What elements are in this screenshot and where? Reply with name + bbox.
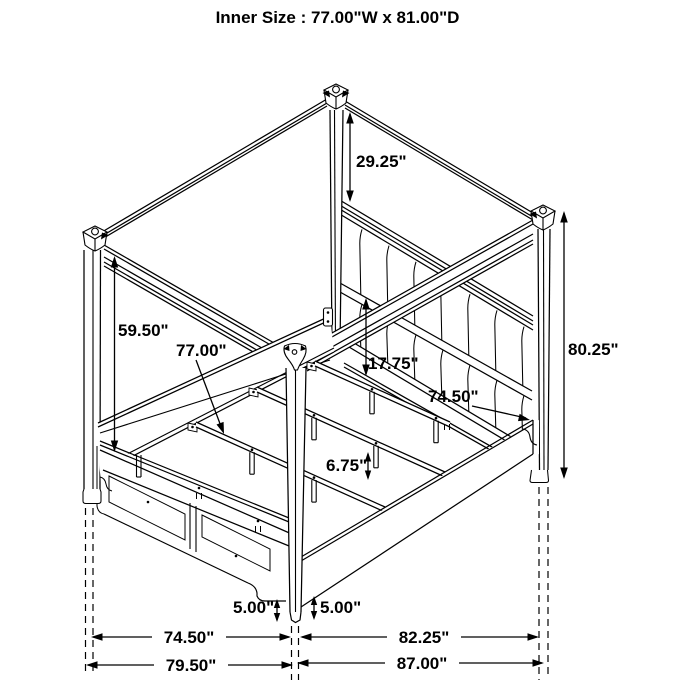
svg-text:77.00": 77.00" [176,341,227,360]
svg-text:5.00": 5.00" [233,598,274,617]
svg-text:6.75": 6.75" [326,456,367,475]
svg-text:82.25": 82.25" [399,628,450,647]
svg-text:87.00": 87.00" [397,654,448,673]
svg-text:79.50": 79.50" [166,656,217,675]
svg-text:Inner Size : 77.00"W x 81.00"D: Inner Size : 77.00"W x 81.00"D [216,8,460,27]
svg-text:74.50": 74.50" [428,387,479,406]
svg-text:17.75": 17.75" [368,354,419,373]
svg-text:59.50": 59.50" [118,321,169,340]
svg-text:5.00": 5.00" [320,598,361,617]
svg-text:80.25": 80.25" [568,340,619,359]
svg-text:29.25": 29.25" [356,152,407,171]
svg-text:74.50": 74.50" [164,628,215,647]
